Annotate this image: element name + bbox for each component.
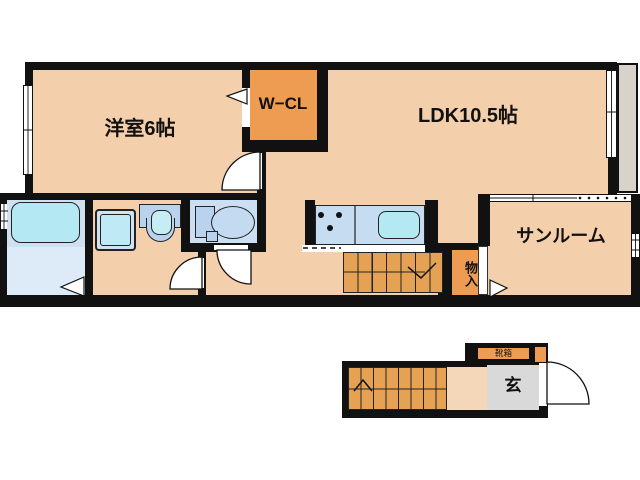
door-monoire xyxy=(478,246,488,295)
wall-monoire-top xyxy=(452,243,478,250)
label-monoire: 物入 xyxy=(453,253,477,295)
label-yoshitsu: 洋室6帖 xyxy=(60,118,220,140)
label-wcl: W−CL xyxy=(247,95,319,114)
counter-edge-strip xyxy=(302,245,425,252)
window-sunroom-top xyxy=(490,194,631,202)
door-leaf-toilet xyxy=(213,244,249,251)
wall-mid-horizontal xyxy=(0,193,266,200)
window-yoshitsu xyxy=(23,85,33,175)
wall-counter-left xyxy=(305,200,315,245)
washing-machine-drum xyxy=(100,214,131,246)
door-leaf-washroom xyxy=(198,257,205,289)
wall-wcl-bottom xyxy=(242,140,328,152)
kitchen-sink xyxy=(378,211,420,239)
door-leaf-entrance xyxy=(538,362,548,407)
staircase-entry xyxy=(348,367,447,410)
entry-column xyxy=(534,346,547,363)
label-ldk: LDK10.5帖 xyxy=(388,105,548,127)
label-sunroom: サンルーム xyxy=(496,227,626,247)
door-leaf-yoshitsu xyxy=(254,152,263,190)
wall-bath-washroom xyxy=(85,193,93,295)
entry-landing xyxy=(447,367,487,410)
wall-entry-bottom xyxy=(342,410,548,418)
floor-plan: 洋室6帖 W−CL LDK10.5帖 サンルーム 物入 玄 靴箱 xyxy=(0,0,640,480)
label-genkan: 玄 xyxy=(487,377,539,396)
label-kutsubako: 靴箱 xyxy=(476,349,531,358)
window-ldk xyxy=(606,70,617,158)
wall-counter-right xyxy=(425,200,438,252)
bathtub xyxy=(11,202,80,243)
wall-sunroom-left xyxy=(478,194,490,246)
bath-floor xyxy=(7,247,85,295)
vanity-basin xyxy=(151,210,172,235)
wall-bottom xyxy=(0,295,640,307)
staircase-upper xyxy=(343,252,443,293)
toilet-step xyxy=(206,231,218,242)
window-sunroom-right xyxy=(631,233,640,258)
balcony xyxy=(617,63,638,193)
wall-washroom-toilet xyxy=(181,193,190,252)
door-arc-entrance xyxy=(547,362,589,404)
